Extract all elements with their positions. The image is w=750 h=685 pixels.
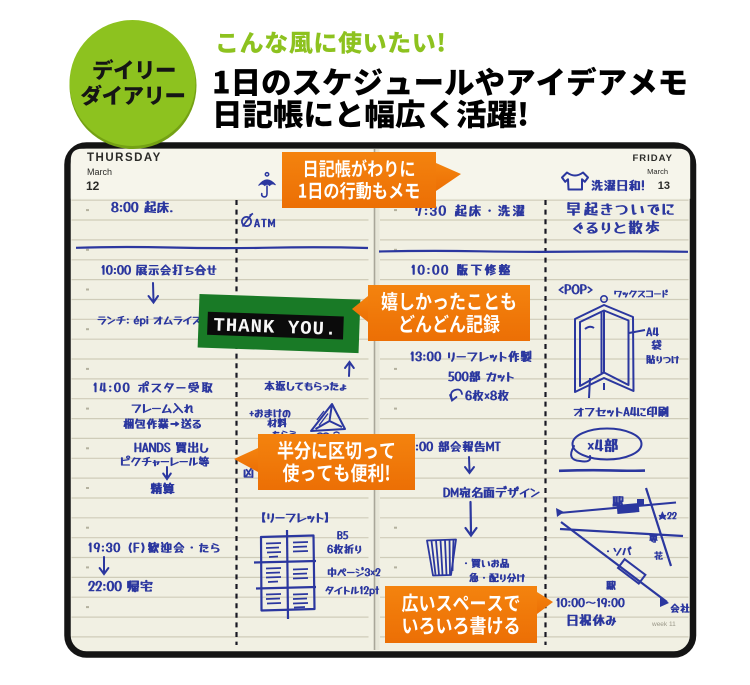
svg-text:13: 13 (658, 180, 670, 192)
svg-text:March: March (87, 167, 112, 177)
svg-text:March: March (647, 167, 668, 176)
svg-text:THANK YOU.: THANK YOU. (213, 314, 338, 340)
svg-text:week 11: week 11 (651, 621, 676, 628)
svg-text:FRIDAY: FRIDAY (633, 153, 674, 164)
svg-text:THURSDAY: THURSDAY (87, 152, 162, 164)
svg-text:12: 12 (86, 179, 100, 193)
